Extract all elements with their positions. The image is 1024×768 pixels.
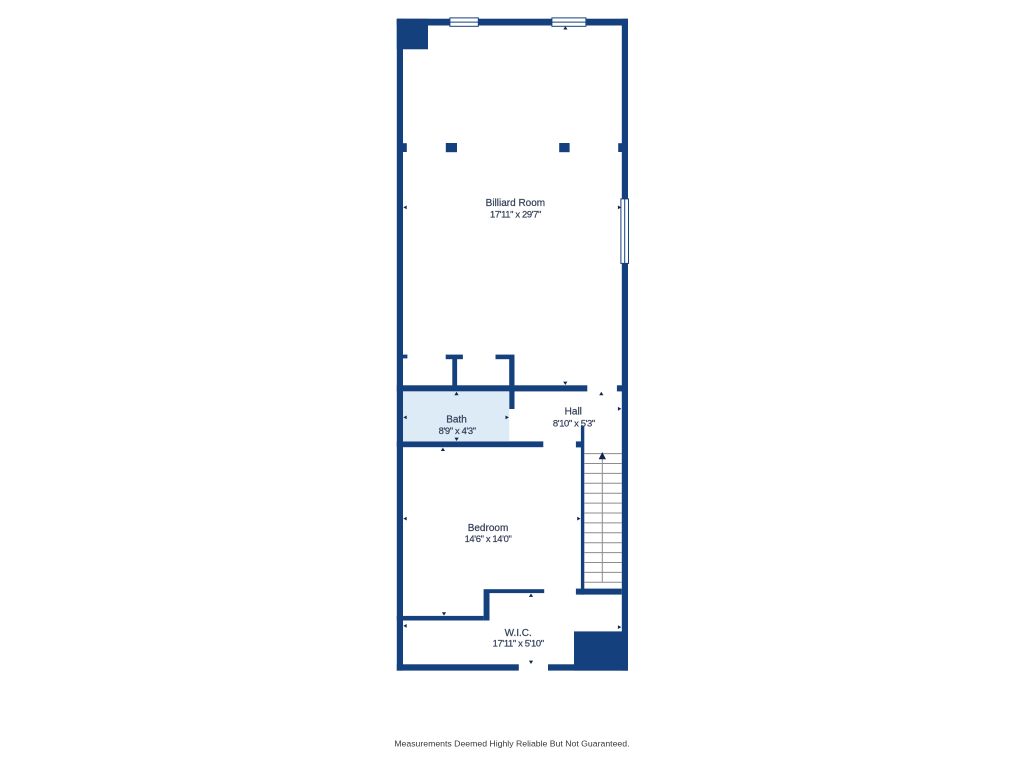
svg-text:8'10" x 5'3": 8'10" x 5'3" <box>553 417 595 428</box>
svg-text:17'11" x 5'10": 17'11" x 5'10" <box>493 638 544 649</box>
svg-text:8'9" x 4'3": 8'9" x 4'3" <box>439 425 476 436</box>
svg-text:Bath: Bath <box>446 414 467 425</box>
svg-text:17'11" x 29'7": 17'11" x 29'7" <box>490 208 541 219</box>
svg-text:14'6" x 14'0": 14'6" x 14'0" <box>465 533 512 544</box>
svg-text:Hall: Hall <box>565 407 582 418</box>
svg-text:Measurements Deemed Highly Rel: Measurements Deemed Highly Reliable But … <box>394 738 629 748</box>
